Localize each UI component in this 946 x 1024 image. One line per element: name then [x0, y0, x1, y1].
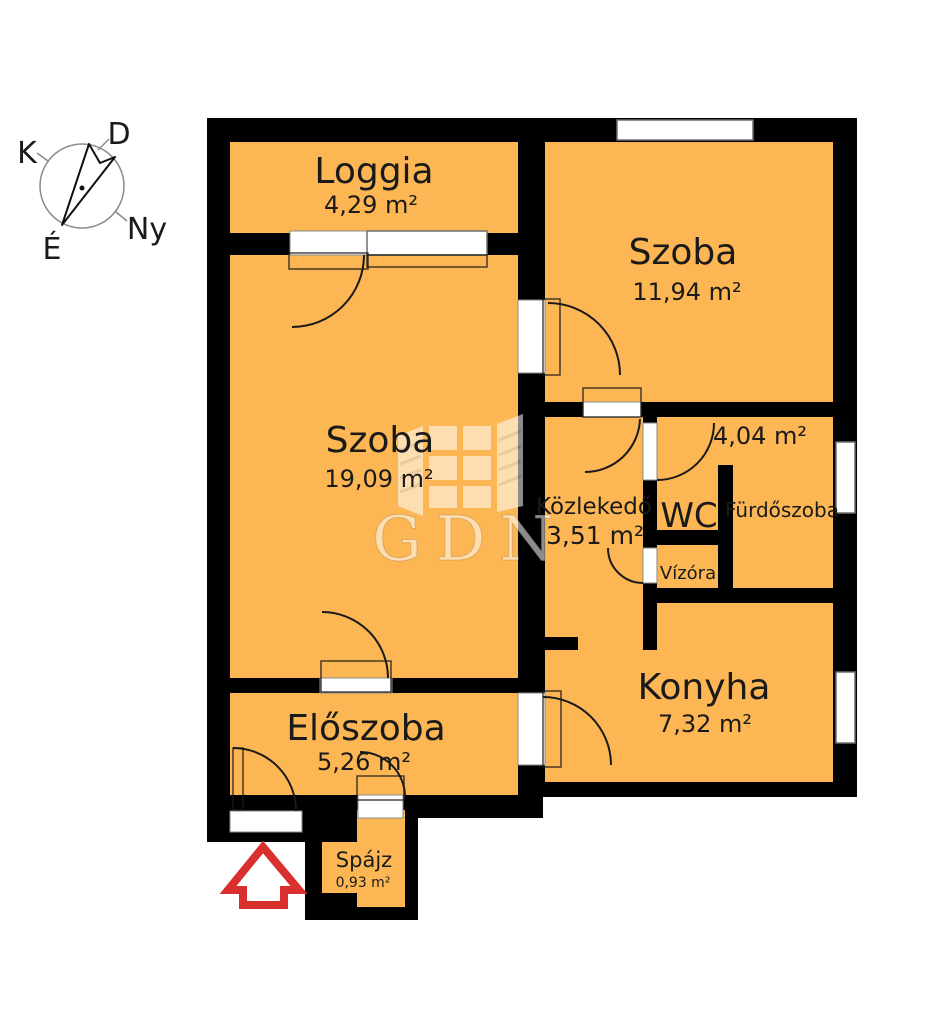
label-szoba-left: Szoba	[326, 420, 435, 461]
compass-label-south: D	[107, 117, 130, 152]
wall-wc-furdoszoba	[718, 465, 733, 588]
area-kozlekedo: 3,51 m²	[546, 521, 644, 550]
label-szoba-top: Szoba	[629, 232, 738, 273]
area-spajz: 0,93 m²	[336, 875, 391, 891]
loggia-window	[367, 231, 487, 255]
szoba-szoba-door-opening	[518, 300, 545, 373]
wall-stub-kozlekedo	[543, 637, 578, 650]
label-kozlekedo: Közlekedő	[536, 494, 652, 520]
area-bath-block: 4,04 m²	[713, 422, 807, 450]
label-vizora: Vízóra	[660, 563, 716, 584]
label-konyha: Konyha	[638, 667, 771, 708]
area-eloszoba: 5,26 m²	[317, 748, 411, 776]
compass-label-east: K	[17, 136, 38, 171]
floor-plan: K D Ny É	[0, 0, 946, 1024]
compass-label-west: Ny	[127, 212, 167, 247]
label-furdoszoba: Fürdőszoba	[725, 498, 839, 522]
area-loggia: 4,29 m²	[324, 191, 418, 219]
room-konyha-upper	[657, 603, 833, 650]
szoba-eloszoba-door-opening	[320, 678, 392, 693]
area-szoba-left: 19,09 m²	[324, 465, 433, 493]
entrance-door-opening	[230, 811, 302, 832]
area-konyha: 7,32 m²	[658, 710, 752, 738]
area-szoba-top: 11,94 m²	[632, 278, 741, 306]
balcony-door-opening	[290, 231, 367, 255]
label-loggia: Loggia	[314, 151, 433, 192]
konyha-window	[836, 672, 855, 743]
compass-center-dot	[80, 186, 85, 191]
label-wc: WC	[660, 496, 717, 536]
vizora-door-opening	[643, 548, 657, 583]
label-eloszoba: Előszoba	[286, 708, 445, 749]
label-spajz: Spájz	[336, 848, 392, 872]
szoba-top-window	[617, 120, 753, 140]
wc-door-opening	[643, 423, 657, 480]
szoba-kozlekedo-door-opening	[583, 402, 641, 417]
compass-label-north: É	[43, 231, 62, 267]
spajz-door-opening	[358, 795, 403, 818]
konyha-door-opening	[518, 693, 545, 765]
